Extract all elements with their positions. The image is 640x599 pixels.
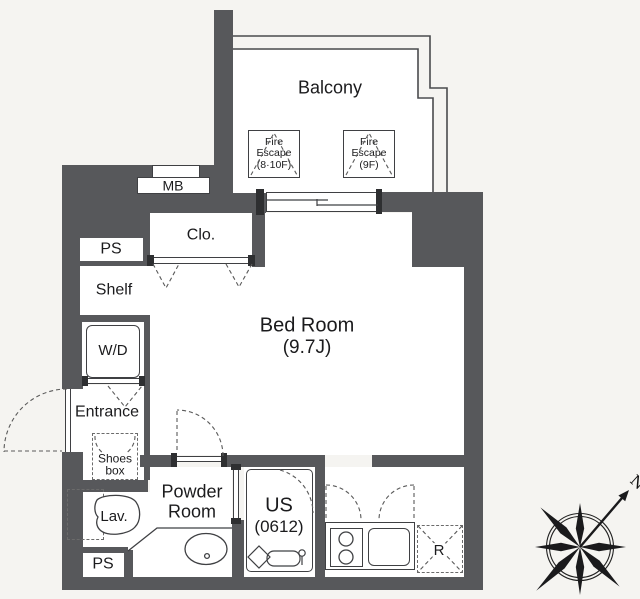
washer-dryer-door xyxy=(85,378,143,384)
kitchen-door-swings xyxy=(326,485,414,520)
balcony-label: Balcony xyxy=(298,79,362,98)
compass-points xyxy=(535,503,626,595)
wall-unit-bath-north xyxy=(232,455,325,467)
wall-top-bar xyxy=(214,10,233,197)
vanity-sink xyxy=(185,534,227,565)
wall-east xyxy=(464,267,483,590)
wall-mb-left-jamb xyxy=(137,165,152,178)
closet-sliding-door xyxy=(150,257,252,264)
powder-floor-sw xyxy=(124,547,150,577)
pipe-space-upper-label: PS xyxy=(100,242,121,259)
closet-label: Clo. xyxy=(187,228,215,245)
wall-ps-closet xyxy=(143,213,150,266)
wall-northwest-block xyxy=(62,165,143,238)
wall-mb-right-jamb xyxy=(200,165,233,178)
wall-lav-south xyxy=(82,547,128,553)
closet-interior xyxy=(150,213,252,257)
wall-mb-right-block xyxy=(210,165,233,195)
fire-escape-hatch-1: FireEscape(8·10F) xyxy=(248,130,300,178)
floor-plan: FireEscape(8·10F) FireEscape(9F) xyxy=(0,0,640,599)
meter-box xyxy=(137,177,210,194)
wall-shelf-wd-divider xyxy=(80,315,150,322)
compass-rose: N xyxy=(535,471,640,595)
wall-west-mid xyxy=(62,238,83,389)
unit-bath-fittings xyxy=(248,546,305,568)
north-arrow xyxy=(580,490,629,547)
entrance-door xyxy=(65,389,71,452)
wall-northeast-block xyxy=(412,212,483,267)
lavatory-label: Lav. xyxy=(100,509,127,525)
window-left-cap xyxy=(256,189,264,215)
shoes-box xyxy=(92,433,138,480)
balcony-floor-step xyxy=(418,97,433,193)
stove-burners xyxy=(339,532,353,564)
wd-fold-mark xyxy=(108,386,142,407)
powder-door-swing xyxy=(177,410,223,456)
shelf-box xyxy=(80,266,150,315)
fire-escape-2-label: FireEscape(9F) xyxy=(344,131,394,177)
wall-unit-bath-east xyxy=(315,467,325,577)
wall-band-right-of-window xyxy=(380,192,483,212)
entrance-door-swing xyxy=(4,389,67,452)
powder-room-label-1: Powder xyxy=(161,483,222,502)
wall-powder-north-right xyxy=(223,455,232,467)
washer-dryer-recess xyxy=(82,322,144,380)
wall-wd-right xyxy=(144,315,150,385)
unit-bath-floor xyxy=(244,467,315,577)
washer-dryer-label: W/D xyxy=(98,343,127,359)
bedroom-label: Bed Room xyxy=(260,316,355,337)
meter-box-door xyxy=(152,165,200,178)
kitchen-sink xyxy=(368,528,410,566)
unit-bath-door-swing xyxy=(280,470,313,513)
unit-bath-label-1: US xyxy=(264,496,294,517)
wall-powder-north-left xyxy=(140,455,177,467)
bedroom-size-label: (9.7J) xyxy=(283,338,332,358)
wall-unit-bath-west-low xyxy=(232,520,244,577)
vanity-counter-edge xyxy=(128,528,232,551)
fire-escape-hatch-2: FireEscape(9F) xyxy=(343,130,395,178)
powder-room-label-2: Room xyxy=(168,503,216,522)
wall-closet-right xyxy=(252,213,265,267)
pipe-space-lower-label: PS xyxy=(92,557,113,574)
powder-room-door xyxy=(177,456,223,462)
washer-dryer-unit xyxy=(86,325,140,378)
unit-bath-door xyxy=(233,469,239,519)
fire-escape-1-label: FireEscape(8·10F) xyxy=(249,131,299,177)
window-sliding xyxy=(266,192,378,212)
window-pane-lines xyxy=(266,199,378,206)
closet-hanger-marks xyxy=(153,264,252,288)
bedroom-floor xyxy=(150,213,412,455)
shelf-label: Shelf xyxy=(96,283,132,300)
entrance-label: Entrance xyxy=(75,405,139,422)
kitchen-counter xyxy=(325,522,415,570)
stove xyxy=(330,528,363,567)
lavatory-outline xyxy=(67,489,104,540)
window-right-cap xyxy=(376,189,382,214)
north-label: N xyxy=(626,471,640,493)
unit-bath-label-2: (0612) xyxy=(253,518,304,536)
meter-box-label: MB xyxy=(163,179,184,194)
wall-ps-shelf-divider xyxy=(80,261,143,266)
wall-ps-lower-right xyxy=(124,550,133,577)
wall-entrance-right xyxy=(144,385,150,480)
refrigerator-space xyxy=(417,525,463,573)
bedroom-floor-east xyxy=(412,267,465,455)
wall-kitchen-stub xyxy=(372,455,464,467)
pipe-space-lower-box xyxy=(83,553,124,577)
wall-south xyxy=(62,577,483,590)
wall-band-under-mb xyxy=(137,193,266,213)
unit-bath-shell xyxy=(246,469,313,572)
pipe-space-upper-box xyxy=(80,238,143,261)
powder-room-floor xyxy=(150,467,232,577)
